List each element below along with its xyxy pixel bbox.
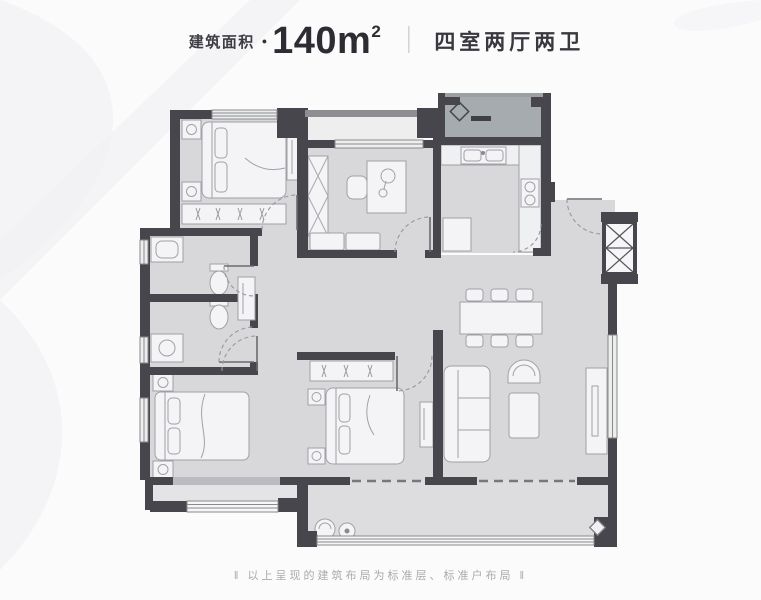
master-window-sill <box>173 477 280 485</box>
sink-icon <box>151 334 183 362</box>
floorplan-page: 建筑面积 ● 140m2 ｜ 四室两厅两卫 <box>0 0 761 600</box>
wall <box>608 438 617 482</box>
bay-window <box>187 501 278 512</box>
wall <box>297 140 335 148</box>
wall <box>433 137 441 258</box>
wall <box>147 367 257 375</box>
pillow-icon <box>168 428 180 454</box>
duct-shaft <box>604 222 635 274</box>
chair-icon <box>347 176 367 199</box>
wall <box>438 137 541 145</box>
wall <box>150 501 187 512</box>
shower-icon <box>238 277 255 320</box>
faucet-dot <box>481 151 485 155</box>
nightstand-icon <box>308 389 325 405</box>
cabinet-icon <box>420 402 433 447</box>
balcony-window <box>317 536 594 545</box>
coffee-table-icon <box>509 393 539 438</box>
chair-icon <box>516 289 533 301</box>
wall <box>297 352 395 360</box>
wall <box>541 105 551 255</box>
dining-furniture <box>460 289 542 347</box>
tv-stand-icon <box>586 368 607 454</box>
pillow-icon <box>339 426 350 454</box>
wall <box>608 283 617 335</box>
nightstand-icon <box>308 448 325 464</box>
window <box>212 110 277 119</box>
window <box>140 240 148 264</box>
nightstand-icon <box>153 461 173 478</box>
wall <box>297 477 350 485</box>
pillow-icon <box>168 398 180 424</box>
dining-table-icon <box>460 302 542 334</box>
pillow-icon <box>215 162 227 192</box>
nightstand-icon <box>182 120 201 139</box>
nightstand-icon <box>153 374 173 391</box>
wall <box>147 228 262 236</box>
chair-icon <box>466 289 483 301</box>
footer-note: ‖ 以上呈现的建筑布局为标准层、标准户布局 ‖ <box>0 567 761 583</box>
window <box>608 335 617 438</box>
chair-icon <box>491 289 508 301</box>
wall <box>297 250 397 258</box>
window <box>140 398 148 442</box>
wall <box>543 182 555 202</box>
fridge-icon <box>443 218 471 251</box>
nightstand-icon <box>182 182 201 201</box>
pillow-icon <box>339 394 350 422</box>
wall <box>170 110 180 235</box>
sofa-icon <box>444 366 490 462</box>
chair-icon <box>466 335 483 347</box>
wall <box>433 330 443 480</box>
bench-icon <box>346 233 380 250</box>
wardrobe-icon <box>310 361 393 381</box>
wall <box>533 248 551 256</box>
chair-icon <box>491 335 508 347</box>
window <box>335 140 423 148</box>
stove-icon <box>521 179 539 207</box>
wall <box>250 228 258 266</box>
chair-icon <box>516 335 533 347</box>
wall <box>297 110 308 258</box>
wall <box>297 531 317 547</box>
toilet-icon <box>210 305 228 329</box>
study-bay-strip <box>305 117 417 140</box>
vent-mark <box>471 116 491 121</box>
floor-plan-svg <box>0 0 761 600</box>
wall <box>425 477 477 485</box>
bench-icon <box>310 233 344 250</box>
wall <box>608 480 617 522</box>
washer-dot <box>345 529 350 534</box>
parapet-wall <box>445 93 543 97</box>
bed-icon <box>326 388 404 464</box>
parapet-wall <box>305 110 417 117</box>
toilet-tank-icon <box>210 264 228 271</box>
pillow-icon <box>215 128 227 158</box>
wall <box>147 477 173 485</box>
window <box>140 337 148 363</box>
bookcase-icon <box>308 156 328 236</box>
wall <box>438 93 445 138</box>
